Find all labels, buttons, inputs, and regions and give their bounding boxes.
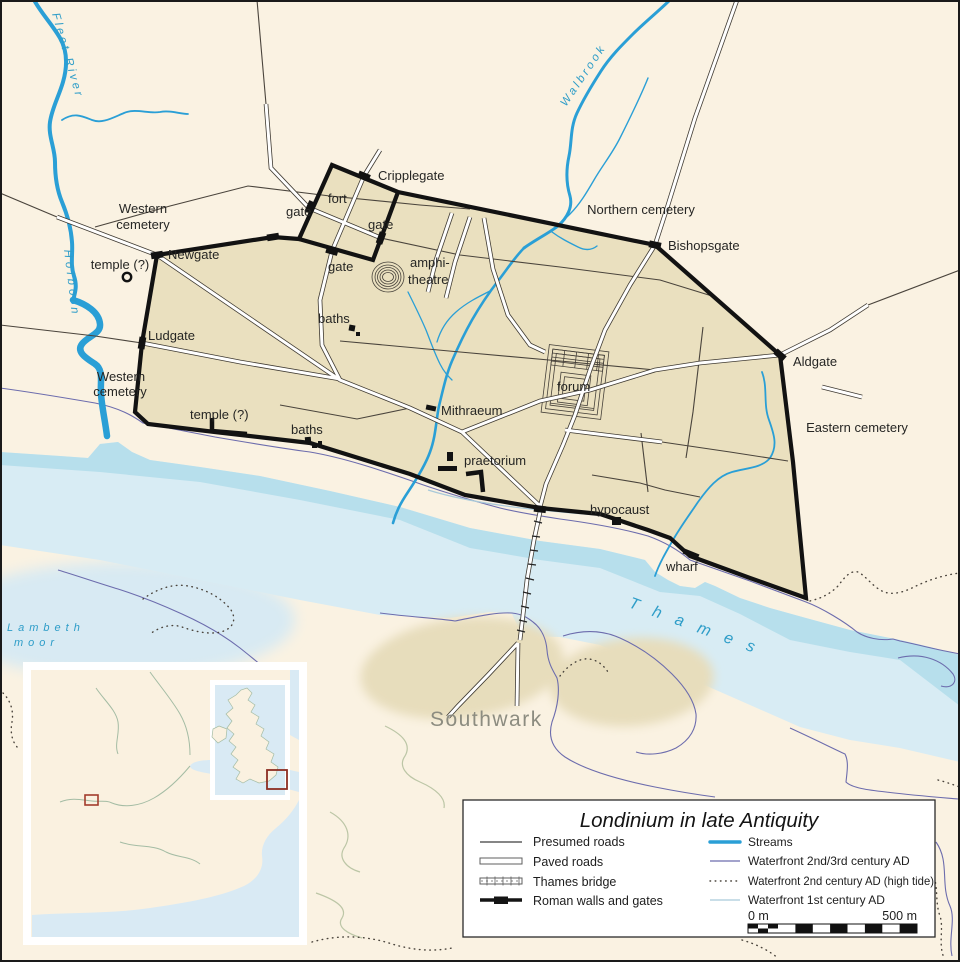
label-amphitheatre-2: theatre bbox=[408, 272, 448, 287]
label-wharf: wharf bbox=[665, 559, 698, 574]
legend-item-roman-walls: Roman walls and gates bbox=[533, 894, 663, 908]
label-western-cemetery-1a: Western bbox=[119, 201, 167, 216]
label-gate-east: gate bbox=[368, 217, 393, 232]
label-gate-south: gate bbox=[328, 259, 353, 274]
label-temple-nw: temple (?) bbox=[91, 257, 150, 272]
label-forum: forum bbox=[557, 379, 590, 394]
legend: Londinium in late Antiquity Presumed roa… bbox=[463, 800, 935, 937]
label-lambeth-1: Lambeth bbox=[7, 622, 85, 634]
label-aldgate: Aldgate bbox=[793, 354, 837, 369]
hypocaust-marker bbox=[612, 517, 621, 525]
legend-item-streams: Streams bbox=[748, 835, 793, 849]
legend-item-waterfront-1c: Waterfront 1st century AD bbox=[748, 893, 885, 907]
thames-bridge-symbol bbox=[480, 877, 522, 886]
paved-road-symbol bbox=[480, 858, 522, 864]
label-fort: fort bbox=[328, 191, 347, 206]
gate-marker-bridge bbox=[534, 505, 547, 513]
label-hypocaust: hypocaust bbox=[590, 502, 650, 517]
label-mithraeum: Mithraeum bbox=[441, 403, 502, 418]
inset-map bbox=[23, 662, 307, 945]
label-eastern-cemetery: Eastern cemetery bbox=[806, 420, 908, 435]
label-amphitheatre-1: amphi- bbox=[410, 255, 450, 270]
scale-end-label: 500 m bbox=[882, 909, 917, 923]
label-lambeth-2: moor bbox=[14, 637, 59, 649]
britain-inset bbox=[210, 680, 290, 800]
label-western-cemetery-1b: cemetery bbox=[116, 217, 170, 232]
label-gate-west: gate bbox=[286, 204, 311, 219]
legend-item-waterfront-23c: Waterfront 2nd/3rd century AD bbox=[748, 854, 910, 868]
map-page: Fleet River Holborn Walbrook Thames Lamb… bbox=[0, 0, 960, 962]
label-baths-n: baths bbox=[318, 311, 350, 326]
label-western-cemetery-2b: cemetery bbox=[93, 384, 147, 399]
label-newgate: Newgate bbox=[168, 247, 219, 262]
label-baths-s: baths bbox=[291, 422, 323, 437]
label-western-cemetery-2a: Western bbox=[97, 369, 145, 384]
label-temple-s: temple (?) bbox=[190, 407, 249, 422]
scale-start-label: 0 m bbox=[748, 909, 769, 923]
label-ludgate: Ludgate bbox=[148, 328, 195, 343]
legend-item-thames-bridge: Thames bridge bbox=[533, 875, 616, 889]
legend-title: Londinium in late Antiquity bbox=[580, 809, 820, 832]
legend-item-presumed-roads: Presumed roads bbox=[533, 835, 625, 849]
label-southwark: Southwark bbox=[430, 708, 543, 731]
legend-item-waterfront-hightide: Waterfront 2nd century AD (high tide) bbox=[748, 874, 934, 888]
label-cripplegate: Cripplegate bbox=[378, 168, 445, 183]
map-canvas: Fleet River Holborn Walbrook Thames Lamb… bbox=[0, 0, 960, 962]
label-bishopsgate: Bishopsgate bbox=[668, 238, 740, 253]
legend-item-paved-roads: Paved roads bbox=[533, 855, 603, 869]
label-praetorium: praetorium bbox=[464, 453, 526, 468]
label-northern-cemetery: Northern cemetery bbox=[587, 202, 695, 217]
